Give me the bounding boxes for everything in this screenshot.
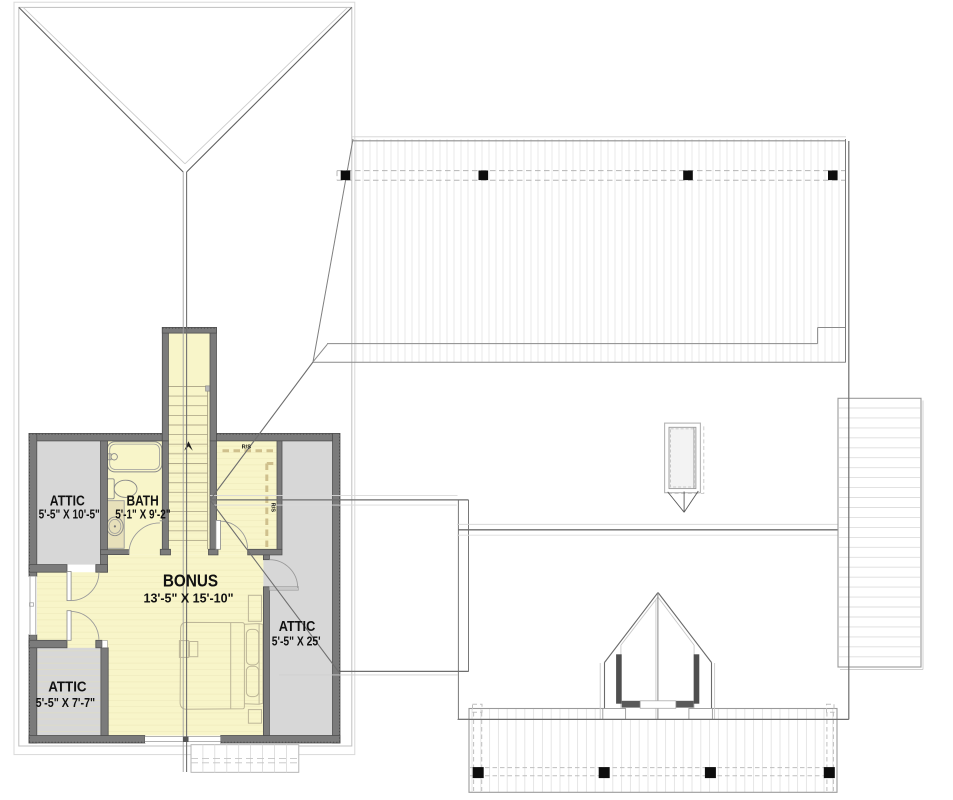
svg-text:BONUS: BONUS <box>163 571 218 591</box>
svg-text:5'-1" X 9'-2": 5'-1" X 9'-2" <box>115 507 170 522</box>
svg-text:13'-5" X 15'-10": 13'-5" X 15'-10" <box>144 591 234 606</box>
svg-text:ATTIC: ATTIC <box>279 619 316 635</box>
svg-text:5'-5" X 25': 5'-5" X 25' <box>272 633 321 648</box>
svg-text:5'-5" X 10'-5": 5'-5" X 10'-5" <box>39 507 100 522</box>
svg-text:5'-5" X 7'-7": 5'-5" X 7'-7" <box>36 695 96 710</box>
svg-text:ATTIC: ATTIC <box>48 679 86 695</box>
svg-text:R/S: R/S <box>269 503 275 513</box>
svg-text:R/S: R/S <box>242 445 252 451</box>
